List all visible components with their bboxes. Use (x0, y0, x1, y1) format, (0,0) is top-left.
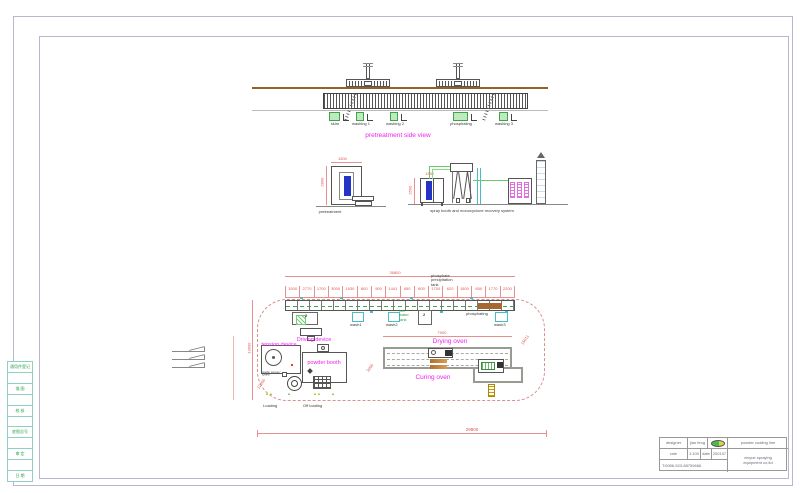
tank-label-skim: skim (324, 122, 346, 126)
stack-cap (363, 66, 373, 67)
cyclone-top-box (450, 163, 473, 172)
dim-text: 2500 (408, 186, 412, 195)
ground-line-elev-left (316, 206, 386, 207)
hood-fan-box (364, 81, 372, 86)
segment-dim: 900 (371, 286, 385, 297)
segment-dim-chain: 1500277017003000193080090014416508001700… (285, 286, 515, 298)
tension-device-label: tension device (254, 342, 304, 348)
wash3-tank (495, 312, 508, 322)
dim-tick (546, 430, 547, 437)
band-tick (410, 297, 413, 299)
wash1-tank (352, 312, 364, 322)
phosphate-note: phosphate precipitation tank (431, 274, 453, 287)
hood-filter (349, 81, 363, 86)
spray-booth (420, 178, 444, 203)
hood-fan-box (454, 81, 462, 86)
title-block: designer jiao feng powder coating line r… (659, 437, 787, 471)
designer-value: jiao feng (688, 438, 708, 449)
segment-dim: 1700 (428, 286, 442, 297)
pump-icon (471, 114, 477, 121)
designer-label: designer (660, 438, 688, 449)
overall-dim-line-bottom (257, 433, 547, 434)
segment-dim: 800 (357, 286, 371, 297)
pump-icon (401, 114, 407, 121)
burner-stack (488, 384, 495, 397)
band-tick (370, 311, 373, 313)
powder-recovery-label: powder recovery system (262, 371, 288, 376)
revision-strip-row: 审 定 (8, 448, 32, 459)
workpiece-blue (344, 176, 351, 196)
wash3-label: wash3 (494, 323, 506, 327)
cad-sheet: 通用件登记描 图校 核底图总号审 定日 期 skim washing 1 was… (0, 0, 800, 493)
tank-washing2 (390, 112, 398, 121)
side-view-title: pretreatment side view (348, 132, 448, 139)
phosphating-label-plan: phosphating (466, 312, 488, 316)
segment-dim: 1500 (285, 286, 299, 297)
overall-dim-top: 26800 (380, 271, 410, 275)
burner-core (481, 362, 495, 370)
segment-dim: 2200 (500, 286, 515, 297)
drying-oven-label: Drying oven (422, 338, 478, 345)
direction-flag (204, 355, 205, 360)
dim-line (414, 178, 415, 204)
loading-arrows: ▲ (287, 392, 291, 396)
loading-label: Loading (263, 404, 277, 408)
tank-label-washing2: washing 2 (382, 122, 408, 126)
revision-strip-row: 校 核 (8, 405, 32, 416)
revision-strip-row (8, 459, 32, 470)
filter-cartridge (524, 182, 529, 198)
tension-wheel-hub (272, 356, 275, 359)
burner-inlet (431, 350, 436, 355)
date-value: 200107 (712, 449, 728, 460)
workpiece-blue (426, 181, 432, 200)
pump-number: 2 (305, 314, 307, 318)
hood-filter (374, 81, 388, 86)
left-vertical-dim: 13900 (247, 343, 251, 354)
exhaust-hood (436, 79, 480, 87)
project-name: powder coating line (728, 438, 788, 449)
cyclone-tip (456, 198, 460, 203)
band-tick (470, 297, 473, 299)
exhaust-arrow-icon (537, 152, 545, 158)
revision-strip-row: 底图总号 (8, 426, 32, 437)
revision-strip-row: 描 图 (8, 383, 32, 394)
direction-flag (172, 351, 204, 352)
guide-line-pink (233, 336, 234, 400)
phone-number: T:0086-523-88759666 (660, 460, 728, 472)
spray-system-label: spray booth and monocyclone recovery sys… (412, 209, 532, 213)
segment-dim: 1500 (457, 286, 471, 297)
overall-dim-line-top (285, 276, 515, 277)
tank-label-washing3: washing 3 (491, 122, 517, 126)
dim-text: 2800 (320, 178, 324, 187)
burner-fan (497, 362, 503, 368)
stack-cap (453, 66, 463, 67)
revision-strip-row (8, 372, 32, 383)
wash2-label: wash2 (386, 323, 398, 327)
segment-dim: 1441 (385, 286, 399, 297)
direction-flag (172, 367, 204, 368)
oven-dim-text: 7000 (430, 331, 454, 335)
oven-dim-line (383, 336, 512, 337)
tank-washing1 (356, 112, 364, 121)
booth-leg (421, 203, 423, 206)
ground-line-elev-right (408, 204, 568, 205)
band-tick (340, 297, 343, 299)
direction-flag (204, 347, 205, 352)
dim-text: 1500 (338, 157, 347, 161)
band-tick (300, 297, 303, 299)
segment-dim: 1770 (485, 286, 499, 297)
overall-dim-bottom: 29800 (430, 428, 514, 433)
operator-mark (321, 346, 325, 350)
segment-dim: 3000 (328, 286, 342, 297)
recovery-cyclone-inner (291, 380, 298, 387)
segment-dim: 800 (414, 286, 428, 297)
booth-divider (433, 178, 434, 203)
logo-ellipse (711, 440, 725, 447)
dim-line (326, 166, 327, 205)
segment-dim: 2770 (299, 286, 313, 297)
powder-booth-label: powder booth (300, 360, 348, 366)
loading-arrows: ▲▲ (313, 392, 321, 396)
hood-filter (439, 81, 453, 86)
overhead-rail (252, 87, 548, 89)
pump-icon (367, 114, 373, 121)
hot-water-tank-label: hot water tank (399, 309, 409, 322)
company-logo (708, 438, 728, 449)
dim-line (331, 162, 362, 163)
heater-element (430, 365, 447, 369)
exhaust-tower (536, 160, 546, 204)
phosphating-heated-section (478, 303, 502, 309)
hood-filter (464, 81, 478, 86)
filter-cartridge (510, 182, 515, 198)
pump-icon (343, 114, 349, 121)
cross-duct (473, 180, 508, 181)
dim-tick (257, 430, 258, 437)
stack-cap (453, 63, 463, 64)
revision-strip-row (8, 437, 32, 448)
red-marker (291, 364, 293, 366)
segment-dim: 1930 (342, 286, 356, 297)
tank-label-washing1: washing 1 (348, 122, 374, 126)
wash1-label: wash1 (350, 323, 362, 327)
exhaust-hood (346, 79, 390, 87)
pump-icon (511, 114, 517, 121)
tank-skim (329, 112, 340, 121)
segment-dim: 620 (442, 286, 456, 297)
revision-strip-row: 日 期 (8, 470, 32, 481)
booth-leg (441, 203, 443, 206)
curing-oven-label: Curing oven (406, 374, 460, 381)
tank-washing3 (499, 112, 508, 121)
filter-cartridge (517, 182, 522, 198)
company-name: xinyue spraying equipment co,ltd (728, 449, 788, 472)
heater-element (430, 359, 447, 363)
bench-base (355, 201, 372, 206)
revision-strip-row: 通用件登记 (8, 362, 32, 372)
pretreatment-label: pretreatment (308, 210, 352, 214)
cyclone-tip (466, 198, 470, 203)
segment-dim: 1700 (314, 286, 328, 297)
filter-grid (313, 376, 331, 389)
direction-flag (204, 363, 205, 368)
burner-fan (445, 350, 452, 356)
date-label: date (701, 449, 712, 460)
stack-cap (363, 63, 373, 64)
revision-strip-row (8, 416, 32, 427)
left-vertical-dim-line (252, 300, 253, 400)
driving-device-box (300, 328, 322, 336)
scale-label: rate (660, 449, 688, 460)
revision-strip: 通用件登记描 图校 核底图总号审 定日 期 (7, 361, 33, 482)
riser-duct (477, 168, 478, 204)
scale-value: 1:100 (688, 449, 701, 460)
pump-number: 2 (423, 313, 425, 317)
loading-arrows: ▲ (331, 392, 335, 396)
ground-line-top (252, 110, 548, 111)
segment-dim: 650 (471, 286, 485, 297)
tank-phosphating (453, 112, 468, 121)
band-tick (440, 311, 443, 313)
segment-dim: 650 (400, 286, 414, 297)
direction-flag (172, 359, 204, 360)
revision-strip-row (8, 394, 32, 405)
off-loading-label: Off loading (303, 404, 322, 408)
tank-label-phosphating: phosphating (446, 122, 476, 126)
loading-arrows: ▲▲ (265, 392, 273, 396)
riser-duct (480, 168, 481, 204)
